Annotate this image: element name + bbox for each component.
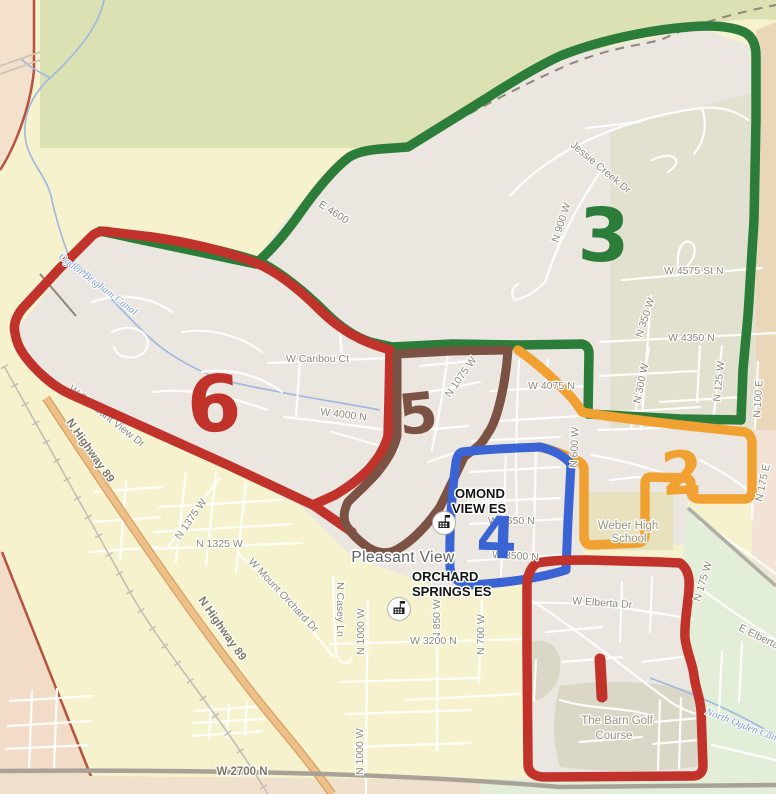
street-label-w3200: W 3200 N [410, 635, 457, 647]
zone3-east-tint [610, 92, 756, 428]
zone-5-number: 5 [395, 380, 441, 449]
street-label-w2700: W 2700 N [216, 766, 267, 778]
poi-label-weber-line2: School [611, 533, 646, 545]
school-label-orchard-line1: ORCHARD [412, 569, 478, 584]
school-label-orchard-line2: SPRINGS ES [412, 584, 492, 599]
street-label-w4350: W 4350 N [668, 332, 715, 344]
poi-label-golf-line2: Course [595, 730, 632, 742]
zone-1-number-stroke [600, 659, 602, 697]
street-label-casey: N Casey Ln [334, 582, 346, 637]
street-label-caribou: W Caribou Ct [286, 353, 349, 365]
street-label-n600w: N 600 W [568, 427, 581, 468]
street-label-n700w: N 700 W [475, 614, 487, 655]
zone-6-number: 6 [185, 359, 242, 451]
map-canvas[interactable]: W Pleasant View Dr E 4600 [0, 0, 776, 794]
street-label-n1325w: N 1325 W [196, 538, 243, 550]
zone-4-number: 4 [475, 503, 518, 572]
street-label-n1000w-b: N 1000 W [354, 728, 366, 775]
street-label-n1000w-a: N 1000 W [355, 608, 367, 655]
poi-label-weber-line1: Weber High [598, 520, 659, 532]
zone-2-number: 2 [659, 438, 704, 510]
city-label: Pleasant View [351, 549, 455, 566]
street-label-w4075: W 4075 N [528, 380, 575, 392]
street-label-n850w: N 850 W [431, 599, 443, 640]
zone-3-number: 3 [577, 192, 631, 280]
school-label-ormond-line1: OMOND [455, 486, 505, 501]
poi-label-golf-line1: The Barn Golf [581, 715, 653, 727]
street-label-w4575: W 4575 St N [664, 265, 724, 277]
orchard-springs-school-icon [388, 598, 411, 621]
